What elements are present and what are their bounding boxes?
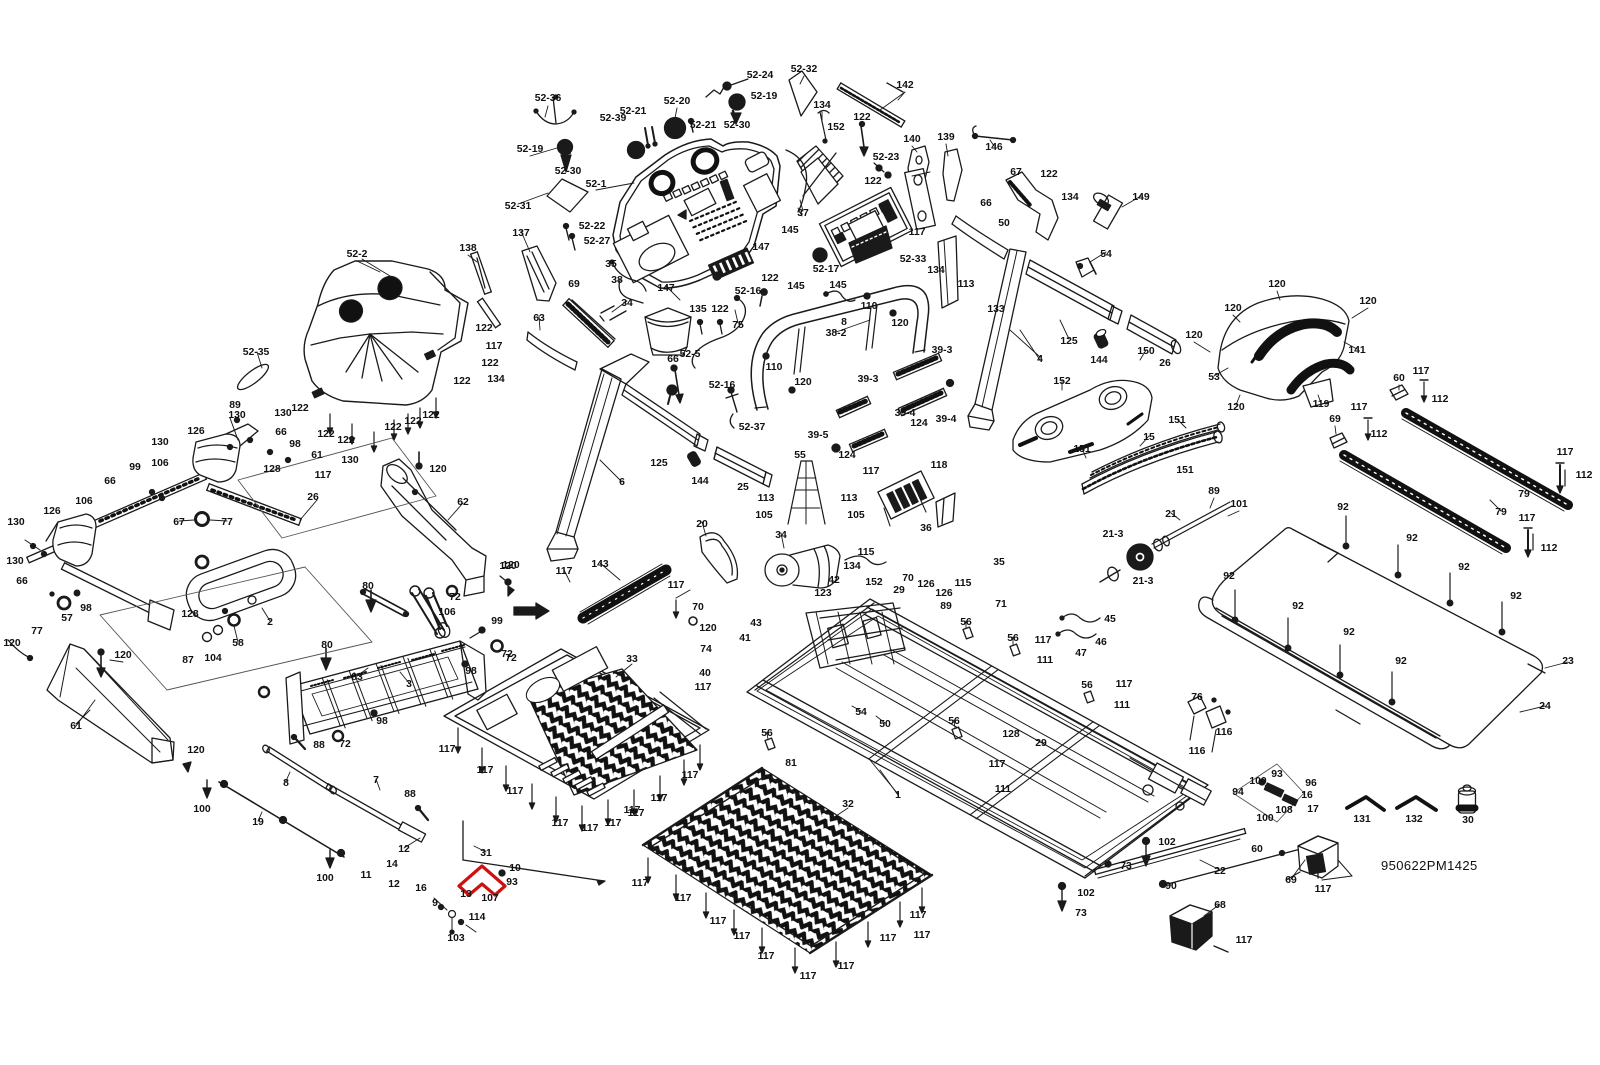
svg-text:60: 60: [1393, 373, 1405, 384]
svg-text:55: 55: [794, 450, 806, 461]
svg-text:54: 54: [855, 707, 867, 718]
svg-text:117: 117: [1035, 635, 1052, 646]
svg-text:52-24: 52-24: [747, 70, 774, 81]
svg-text:120: 120: [3, 638, 21, 649]
svg-text:124: 124: [838, 450, 856, 461]
svg-text:42: 42: [828, 575, 840, 586]
svg-text:117: 117: [675, 893, 692, 904]
svg-text:98: 98: [465, 666, 477, 677]
svg-text:120: 120: [699, 623, 717, 634]
svg-text:147: 147: [752, 242, 770, 253]
svg-text:117: 117: [1557, 447, 1574, 458]
svg-text:92: 92: [1343, 627, 1355, 638]
svg-text:98: 98: [376, 716, 388, 727]
svg-text:80: 80: [321, 640, 333, 651]
svg-text:8: 8: [283, 778, 289, 789]
svg-text:120: 120: [1224, 303, 1242, 314]
svg-text:35: 35: [993, 557, 1005, 568]
svg-text:90: 90: [1165, 881, 1177, 892]
svg-text:144: 144: [691, 476, 709, 487]
svg-text:120: 120: [794, 377, 812, 388]
svg-text:25: 25: [737, 482, 749, 493]
svg-text:89: 89: [1208, 486, 1220, 497]
svg-text:117: 117: [486, 341, 503, 352]
svg-text:39-3: 39-3: [858, 374, 879, 385]
svg-text:125: 125: [1060, 336, 1078, 347]
svg-text:47: 47: [1075, 648, 1087, 659]
svg-text:152: 152: [865, 577, 883, 588]
svg-text:72: 72: [505, 653, 517, 664]
svg-text:140: 140: [903, 134, 921, 145]
svg-text:142: 142: [896, 80, 914, 91]
svg-text:115: 115: [858, 547, 875, 558]
svg-text:98: 98: [80, 603, 92, 614]
svg-text:145: 145: [781, 225, 799, 236]
svg-text:73: 73: [1075, 908, 1087, 919]
svg-text:32: 32: [842, 799, 854, 810]
svg-text:99: 99: [491, 616, 503, 627]
svg-text:15: 15: [1143, 432, 1155, 443]
svg-text:93: 93: [1271, 769, 1283, 780]
svg-text:77: 77: [221, 517, 233, 528]
svg-text:21: 21: [1165, 509, 1177, 520]
svg-text:117: 117: [1519, 513, 1536, 524]
svg-text:117: 117: [651, 793, 668, 804]
svg-text:56: 56: [1081, 680, 1093, 691]
svg-text:8: 8: [841, 317, 847, 328]
svg-text:131: 131: [1353, 814, 1371, 825]
svg-text:102: 102: [1077, 888, 1095, 899]
svg-text:112: 112: [1432, 394, 1449, 405]
svg-text:128: 128: [1002, 729, 1020, 740]
svg-text:120: 120: [429, 464, 447, 475]
svg-text:112: 112: [1576, 470, 1593, 481]
svg-text:52-32: 52-32: [791, 64, 818, 75]
svg-text:66: 66: [275, 427, 287, 438]
svg-text:152: 152: [1053, 376, 1071, 387]
svg-text:117: 117: [914, 930, 931, 941]
svg-text:117: 117: [632, 878, 649, 889]
svg-text:67: 67: [173, 517, 185, 528]
svg-text:117: 117: [1413, 366, 1430, 377]
svg-text:133: 133: [987, 304, 1005, 315]
svg-text:105: 105: [755, 510, 773, 521]
svg-text:105: 105: [847, 510, 865, 521]
svg-text:117: 117: [1315, 884, 1332, 895]
svg-text:122: 122: [337, 435, 355, 446]
svg-text:152: 152: [827, 122, 845, 133]
svg-text:61: 61: [311, 450, 323, 461]
svg-text:117: 117: [758, 951, 775, 962]
svg-text:134: 134: [843, 561, 861, 572]
svg-text:10: 10: [509, 863, 521, 874]
svg-text:117: 117: [910, 910, 927, 921]
svg-text:24: 24: [1539, 701, 1551, 712]
svg-text:29: 29: [1035, 738, 1047, 749]
svg-text:79: 79: [1518, 489, 1530, 500]
svg-text:21-3: 21-3: [1103, 529, 1124, 540]
svg-text:130: 130: [228, 410, 246, 421]
svg-text:52-5: 52-5: [680, 349, 701, 360]
svg-text:52-21: 52-21: [620, 106, 647, 117]
svg-text:69: 69: [1329, 414, 1341, 425]
svg-text:106: 106: [75, 496, 93, 507]
svg-text:117: 117: [315, 470, 332, 481]
svg-text:7: 7: [373, 775, 379, 786]
svg-text:92: 92: [1395, 656, 1407, 667]
svg-text:139: 139: [937, 132, 955, 143]
svg-text:66: 66: [667, 354, 679, 365]
svg-text:132: 132: [1405, 814, 1423, 825]
svg-text:80: 80: [362, 581, 374, 592]
svg-text:96: 96: [1305, 778, 1317, 789]
svg-text:117: 117: [710, 916, 727, 927]
svg-text:88: 88: [313, 740, 325, 751]
svg-text:56: 56: [948, 716, 960, 727]
svg-text:113: 113: [841, 493, 858, 504]
svg-text:92: 92: [1510, 591, 1522, 602]
svg-text:117: 117: [1116, 679, 1133, 690]
svg-text:134: 134: [1061, 192, 1079, 203]
svg-text:126: 126: [187, 426, 205, 437]
svg-text:115: 115: [955, 578, 972, 589]
svg-text:52-37: 52-37: [739, 422, 766, 433]
svg-text:92: 92: [1337, 502, 1349, 513]
svg-text:61: 61: [70, 721, 82, 732]
svg-text:52-19: 52-19: [517, 144, 544, 155]
svg-text:76: 76: [1191, 692, 1203, 703]
svg-text:138: 138: [459, 243, 477, 254]
svg-text:68: 68: [1214, 900, 1226, 911]
svg-text:113: 113: [758, 493, 775, 504]
svg-text:134: 134: [813, 100, 831, 111]
svg-text:39-4: 39-4: [936, 414, 957, 425]
svg-text:34: 34: [621, 298, 633, 309]
svg-text:52-21: 52-21: [690, 120, 717, 131]
svg-text:125: 125: [650, 458, 668, 469]
svg-text:56: 56: [761, 728, 773, 739]
svg-text:117: 117: [880, 933, 897, 944]
svg-text:56: 56: [1007, 633, 1019, 644]
svg-text:122: 122: [761, 273, 779, 284]
svg-text:50: 50: [879, 719, 891, 730]
svg-text:88: 88: [404, 789, 416, 800]
svg-text:141: 141: [1348, 345, 1366, 356]
svg-text:126: 126: [935, 588, 953, 599]
svg-text:137: 137: [512, 228, 530, 239]
svg-text:110: 110: [766, 362, 783, 373]
svg-text:117: 117: [863, 466, 880, 477]
svg-text:81: 81: [785, 758, 797, 769]
svg-text:134: 134: [487, 374, 505, 385]
svg-text:128: 128: [181, 609, 199, 620]
svg-text:75: 75: [732, 320, 744, 331]
svg-text:116: 116: [1216, 727, 1233, 738]
svg-text:120: 120: [1185, 330, 1203, 341]
svg-text:120: 120: [1359, 296, 1377, 307]
svg-text:130: 130: [6, 556, 24, 567]
svg-text:120: 120: [1268, 279, 1286, 290]
svg-text:112: 112: [1371, 429, 1388, 440]
svg-text:117: 117: [909, 227, 926, 238]
svg-text:110: 110: [861, 301, 878, 312]
svg-text:130: 130: [341, 455, 359, 466]
svg-text:122: 122: [481, 358, 499, 369]
svg-text:92: 92: [1223, 571, 1235, 582]
svg-text:94: 94: [1232, 787, 1244, 798]
svg-text:113: 113: [958, 279, 975, 290]
svg-text:52-19: 52-19: [751, 91, 778, 102]
svg-text:66: 66: [980, 198, 992, 209]
svg-text:122: 122: [317, 429, 335, 440]
svg-text:37: 37: [797, 208, 809, 219]
svg-text:128: 128: [263, 464, 281, 475]
svg-text:60: 60: [1251, 844, 1263, 855]
svg-text:92: 92: [1458, 562, 1470, 573]
svg-text:99: 99: [129, 462, 141, 473]
svg-text:151: 151: [1176, 465, 1194, 476]
svg-text:112: 112: [1541, 543, 1558, 554]
svg-text:26: 26: [1159, 358, 1171, 369]
svg-text:52-33: 52-33: [900, 254, 927, 265]
svg-text:120: 120: [114, 650, 132, 661]
svg-text:93: 93: [506, 877, 518, 888]
svg-text:100: 100: [193, 804, 211, 815]
svg-text:117: 117: [477, 765, 494, 776]
svg-text:52-1: 52-1: [586, 179, 607, 190]
svg-text:130: 130: [274, 408, 292, 419]
svg-text:73: 73: [1120, 861, 1132, 872]
svg-text:135: 135: [689, 304, 707, 315]
svg-text:43: 43: [750, 618, 762, 629]
svg-text:35: 35: [605, 259, 617, 270]
svg-text:122: 122: [1040, 169, 1058, 180]
svg-text:117: 117: [1236, 935, 1253, 946]
svg-text:124: 124: [910, 418, 928, 429]
svg-text:13: 13: [460, 889, 472, 900]
svg-text:98: 98: [289, 439, 301, 450]
svg-text:20: 20: [696, 519, 708, 530]
svg-text:117: 117: [734, 931, 751, 942]
svg-text:26: 26: [307, 492, 319, 503]
svg-text:122: 122: [384, 422, 402, 433]
svg-text:53: 53: [1208, 372, 1220, 383]
svg-text:52-22: 52-22: [579, 221, 606, 232]
svg-text:117: 117: [800, 971, 817, 982]
svg-text:101: 101: [1230, 499, 1248, 510]
svg-text:63: 63: [533, 313, 545, 324]
svg-text:126: 126: [917, 579, 935, 590]
svg-text:147: 147: [657, 283, 675, 294]
svg-text:40: 40: [699, 668, 711, 679]
svg-text:122: 122: [711, 304, 729, 315]
svg-text:52-36: 52-36: [535, 93, 562, 104]
svg-text:134: 134: [927, 265, 945, 276]
svg-text:120: 120: [891, 318, 909, 329]
svg-text:29: 29: [893, 585, 905, 596]
svg-text:120: 120: [1227, 402, 1245, 413]
svg-text:3: 3: [406, 679, 412, 690]
svg-text:106: 106: [151, 458, 169, 469]
svg-text:71: 71: [995, 599, 1007, 610]
svg-text:62: 62: [457, 497, 469, 508]
svg-text:52-23: 52-23: [873, 152, 900, 163]
svg-text:52-17: 52-17: [813, 264, 840, 275]
svg-text:52-30: 52-30: [555, 166, 582, 177]
svg-text:122: 122: [422, 410, 440, 421]
svg-text:117: 117: [605, 818, 622, 829]
svg-text:45: 45: [1104, 614, 1116, 625]
svg-text:1: 1: [895, 790, 901, 801]
svg-text:143: 143: [591, 559, 609, 570]
svg-text:117: 117: [582, 823, 599, 834]
svg-text:117: 117: [552, 818, 569, 829]
svg-text:14: 14: [386, 859, 398, 870]
svg-text:117: 117: [556, 566, 573, 577]
svg-text:22: 22: [1214, 866, 1226, 877]
svg-text:126: 126: [43, 506, 61, 517]
svg-text:69: 69: [1285, 875, 1297, 886]
svg-text:144: 144: [1090, 355, 1108, 366]
svg-text:39-5: 39-5: [808, 430, 829, 441]
svg-text:122: 122: [453, 376, 471, 387]
svg-text:103: 103: [447, 933, 465, 944]
svg-text:114: 114: [469, 912, 486, 923]
svg-text:77: 77: [31, 626, 43, 637]
svg-text:117: 117: [838, 961, 855, 972]
svg-text:69: 69: [568, 279, 580, 290]
svg-text:950622PM1425: 950622PM1425: [1381, 858, 1478, 873]
svg-text:118: 118: [931, 460, 948, 471]
svg-text:122: 122: [291, 403, 309, 414]
svg-text:111: 111: [1037, 655, 1053, 666]
svg-text:130: 130: [151, 437, 169, 448]
svg-text:92: 92: [1292, 601, 1304, 612]
svg-text:34: 34: [775, 530, 787, 541]
svg-text:52-16: 52-16: [735, 286, 762, 297]
svg-text:54: 54: [1100, 249, 1112, 260]
svg-text:100: 100: [1249, 776, 1267, 787]
svg-text:107: 107: [481, 893, 499, 904]
svg-text:52-35: 52-35: [243, 347, 270, 358]
svg-text:12: 12: [398, 844, 410, 855]
svg-text:23: 23: [1562, 656, 1574, 667]
svg-text:149: 149: [1132, 192, 1150, 203]
svg-text:66: 66: [104, 476, 116, 487]
svg-text:122: 122: [404, 416, 422, 427]
svg-text:52-16: 52-16: [709, 380, 736, 391]
svg-text:117: 117: [989, 759, 1006, 770]
svg-text:117: 117: [668, 580, 685, 591]
svg-text:21-3: 21-3: [1133, 576, 1154, 587]
svg-text:123: 123: [814, 588, 832, 599]
svg-text:150: 150: [1137, 346, 1155, 357]
svg-text:33: 33: [626, 654, 638, 665]
svg-text:122: 122: [853, 112, 871, 123]
svg-text:41: 41: [739, 633, 751, 644]
svg-text:52-30: 52-30: [724, 120, 751, 131]
svg-text:16: 16: [1301, 790, 1313, 801]
svg-text:120: 120: [502, 560, 520, 571]
svg-text:11: 11: [361, 870, 372, 881]
svg-text:92: 92: [1406, 533, 1418, 544]
svg-text:117: 117: [439, 744, 456, 755]
svg-text:52-27: 52-27: [584, 236, 611, 247]
svg-text:120: 120: [187, 745, 205, 756]
svg-text:70: 70: [692, 602, 704, 613]
svg-text:117: 117: [507, 786, 524, 797]
svg-text:6: 6: [619, 477, 625, 488]
svg-text:67: 67: [1010, 167, 1022, 178]
svg-text:151: 151: [1168, 415, 1186, 426]
svg-text:52-2: 52-2: [347, 249, 368, 260]
svg-text:122: 122: [475, 323, 493, 334]
svg-text:117: 117: [695, 682, 712, 693]
svg-text:56: 56: [960, 617, 972, 628]
svg-text:19: 19: [252, 817, 264, 828]
svg-text:74: 74: [700, 644, 712, 655]
svg-text:46: 46: [1095, 637, 1107, 648]
svg-text:36: 36: [920, 523, 932, 534]
svg-text:117: 117: [682, 770, 699, 781]
svg-text:57: 57: [61, 613, 73, 624]
svg-text:31: 31: [480, 848, 492, 859]
svg-text:9: 9: [432, 898, 438, 909]
svg-text:52-20: 52-20: [664, 96, 691, 107]
svg-text:79: 79: [1495, 507, 1507, 518]
svg-text:70: 70: [902, 573, 914, 584]
svg-text:72: 72: [339, 739, 351, 750]
svg-text:111: 111: [1114, 700, 1130, 711]
svg-text:104: 104: [204, 653, 222, 664]
svg-text:108: 108: [1275, 805, 1293, 816]
svg-text:83: 83: [351, 672, 363, 683]
svg-text:122: 122: [864, 176, 882, 187]
svg-text:89: 89: [940, 601, 952, 612]
svg-text:117: 117: [1351, 402, 1368, 413]
svg-text:145: 145: [787, 281, 805, 292]
svg-text:151: 151: [1073, 444, 1091, 455]
svg-text:100: 100: [1256, 813, 1274, 824]
svg-text:130: 130: [7, 517, 25, 528]
svg-text:50: 50: [998, 218, 1010, 229]
svg-text:100: 100: [316, 873, 334, 884]
svg-text:39-3: 39-3: [932, 345, 953, 356]
svg-text:117: 117: [624, 805, 641, 816]
svg-text:116: 116: [1189, 746, 1206, 757]
svg-text:17: 17: [1307, 804, 1319, 815]
svg-text:2: 2: [267, 617, 273, 628]
svg-text:12: 12: [388, 879, 400, 890]
svg-text:58: 58: [232, 638, 244, 649]
svg-text:145: 145: [829, 280, 847, 291]
svg-text:87: 87: [182, 655, 194, 666]
svg-text:119: 119: [1313, 399, 1330, 410]
svg-text:106: 106: [438, 607, 456, 618]
svg-text:16: 16: [415, 883, 427, 894]
svg-text:38-2: 38-2: [826, 328, 847, 339]
svg-text:111: 111: [995, 784, 1011, 795]
svg-text:102: 102: [1158, 837, 1176, 848]
svg-text:4: 4: [1037, 354, 1043, 365]
svg-text:66: 66: [16, 576, 28, 587]
svg-text:146: 146: [985, 142, 1003, 153]
svg-text:30: 30: [1462, 815, 1474, 826]
svg-text:38: 38: [611, 275, 623, 286]
svg-text:72: 72: [449, 592, 461, 603]
svg-text:52-31: 52-31: [505, 201, 532, 212]
